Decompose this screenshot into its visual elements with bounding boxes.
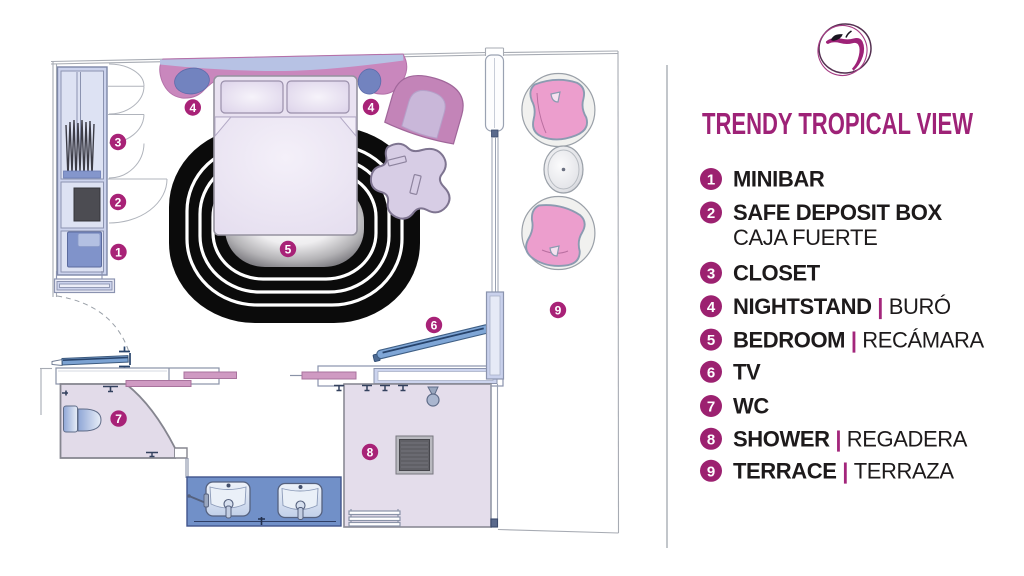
svg-text:WC: WC bbox=[733, 394, 769, 419]
svg-text:4: 4 bbox=[189, 101, 196, 115]
svg-text:TV: TV bbox=[733, 360, 761, 385]
svg-text:5: 5 bbox=[707, 332, 715, 349]
svg-text:SAFE DEPOSIT BOX: SAFE DEPOSIT BOX bbox=[733, 200, 942, 225]
svg-text:6: 6 bbox=[431, 318, 438, 332]
svg-text:3: 3 bbox=[115, 135, 122, 149]
svg-text:SHOWER | REGADERA: SHOWER | REGADERA bbox=[733, 427, 968, 452]
svg-text:2: 2 bbox=[707, 205, 715, 222]
svg-text:2: 2 bbox=[115, 195, 122, 209]
svg-text:9: 9 bbox=[555, 303, 562, 317]
svg-text:7: 7 bbox=[707, 399, 715, 416]
svg-text:CAJA FUERTE: CAJA FUERTE bbox=[733, 225, 877, 250]
svg-text:4: 4 bbox=[707, 299, 716, 316]
svg-text:8: 8 bbox=[707, 431, 715, 448]
svg-text:CLOSET: CLOSET bbox=[733, 260, 821, 285]
svg-text:6: 6 bbox=[707, 364, 715, 381]
svg-text:BEDROOM | RECÁMARA: BEDROOM | RECÁMARA bbox=[733, 327, 984, 352]
svg-text:8: 8 bbox=[367, 445, 374, 459]
svg-text:TERRACE | TERRAZA: TERRACE | TERRAZA bbox=[733, 459, 954, 484]
svg-text:9: 9 bbox=[707, 463, 715, 480]
svg-text:NIGHTSTAND | BURÓ: NIGHTSTAND | BURÓ bbox=[733, 294, 951, 319]
svg-text:MINIBAR: MINIBAR bbox=[733, 167, 825, 192]
svg-text:4: 4 bbox=[368, 100, 375, 114]
svg-text:5: 5 bbox=[285, 242, 292, 256]
svg-text:1: 1 bbox=[707, 172, 715, 189]
svg-text:3: 3 bbox=[707, 265, 715, 282]
svg-text:7: 7 bbox=[115, 412, 122, 426]
svg-text:1: 1 bbox=[115, 245, 122, 259]
svg-text:TRENDY TROPICAL VIEW: TRENDY TROPICAL VIEW bbox=[702, 106, 974, 141]
